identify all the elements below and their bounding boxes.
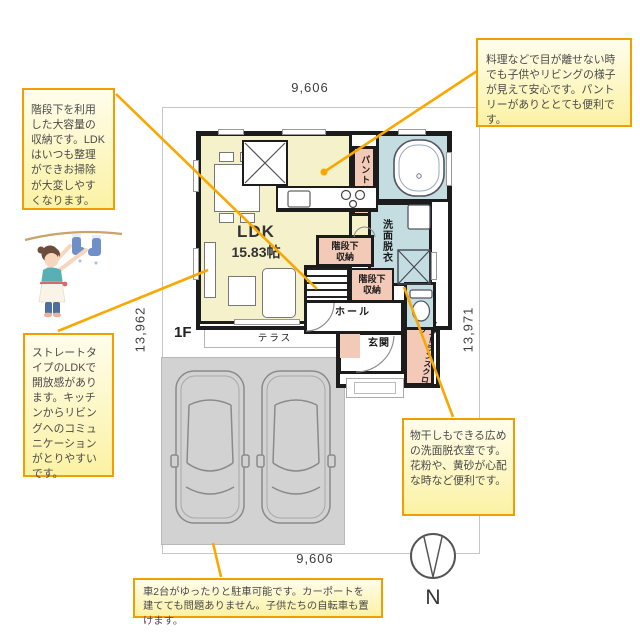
dining-table (214, 164, 260, 212)
entrance-step (340, 334, 360, 358)
window-terrace-door (234, 319, 300, 325)
stair-storage-b-label: 階段下 収納 (352, 274, 392, 297)
annotation-parking: 車2台がゆったりと駐車可能です。カーポートを建てても問題ありません。子供たちの自… (133, 578, 383, 618)
laundry-woman-illustration (20, 218, 128, 318)
annotation-washroom-text: 物干しもできる広めの洗面脱衣室です。花粉や、黄砂が心配な時など便利です。 (410, 430, 507, 487)
entrance-porch-step (354, 382, 396, 394)
coffee-table (228, 276, 256, 306)
room-entrance-closet: エントランスクローク (404, 324, 434, 386)
annotation-stair-storage: 階段下を利用した大容量の収納です。LDKはいつも整理ができお掃除が大変しやすくな… (22, 88, 115, 210)
window (193, 248, 199, 280)
room-stair-storage-a: 階段下 収納 (316, 235, 374, 267)
sofa (262, 268, 296, 318)
entrance-label: 玄関 (368, 338, 390, 351)
window (218, 129, 244, 135)
annotation-stair-storage-text: 階段下を利用した大容量の収納です。LDKはいつも整理ができお掃除が大変しやすくな… (31, 104, 105, 207)
window (431, 252, 437, 280)
annotation-washroom: 物干しもできる広めの洗面脱衣室です。花粉や、黄砂が心配な時など便利です。 (402, 418, 515, 516)
room-stair-storage-b: 階段下 収納 (350, 268, 394, 302)
room-bath (376, 133, 450, 202)
ldk-name: LDK (206, 222, 306, 242)
window (446, 152, 452, 186)
chair (240, 152, 255, 162)
annotation-kitchen-text: 料理などで目が離せない時でも子供やリビングの様子が見えて安心です。パントリーがあ… (486, 54, 616, 126)
floor-label: 1F (174, 324, 192, 341)
parked-cars (161, 357, 345, 545)
compass: N (405, 528, 465, 612)
chair (219, 152, 234, 162)
dimension-left: 13,962 (133, 290, 148, 370)
dimension-right: 13,971 (461, 290, 476, 370)
window (282, 129, 326, 135)
annotation-ldk: ストレートタイプのLDKで開放感があります。キッチンからリビングへのコミュニケー… (23, 333, 114, 477)
annotation-parking-text: 車2台がゆったりと駐車可能です。カーポートを建てても問題ありません。子供たちの自… (143, 587, 369, 627)
stair-storage-a-label: 階段下 収納 (319, 241, 371, 264)
dimension-top: 9,606 (250, 80, 370, 95)
terrace-label: テラス (258, 330, 292, 344)
room-hall: ホール (304, 300, 404, 334)
room-toilet (404, 282, 436, 330)
ldk-size: 15.83帖 (206, 242, 306, 262)
annotation-kitchen: 料理などで目が離せない時でも子供やリビングの様子が見えて安心です。パントリーがあ… (476, 38, 632, 127)
annotation-ldk-text: ストレートタイプのLDKで開放感があります。キッチンからリビングへのコミュニケー… (32, 347, 97, 480)
dimension-bottom: 9,606 (255, 551, 375, 566)
floor-plan-flyer: テラス パントリー エントランスクローク 洗面脱衣 階段下 収納 階段下 収納 … (0, 0, 640, 640)
ldk-label: LDK 15.83帖 (206, 222, 306, 262)
window (193, 160, 199, 192)
stairs (304, 265, 350, 303)
hall-label: ホール (335, 307, 371, 320)
compass-north-label: N (425, 586, 440, 609)
kitchen-counter (276, 186, 378, 212)
washroom-label: 洗面脱衣 (379, 219, 392, 263)
window (398, 129, 426, 135)
